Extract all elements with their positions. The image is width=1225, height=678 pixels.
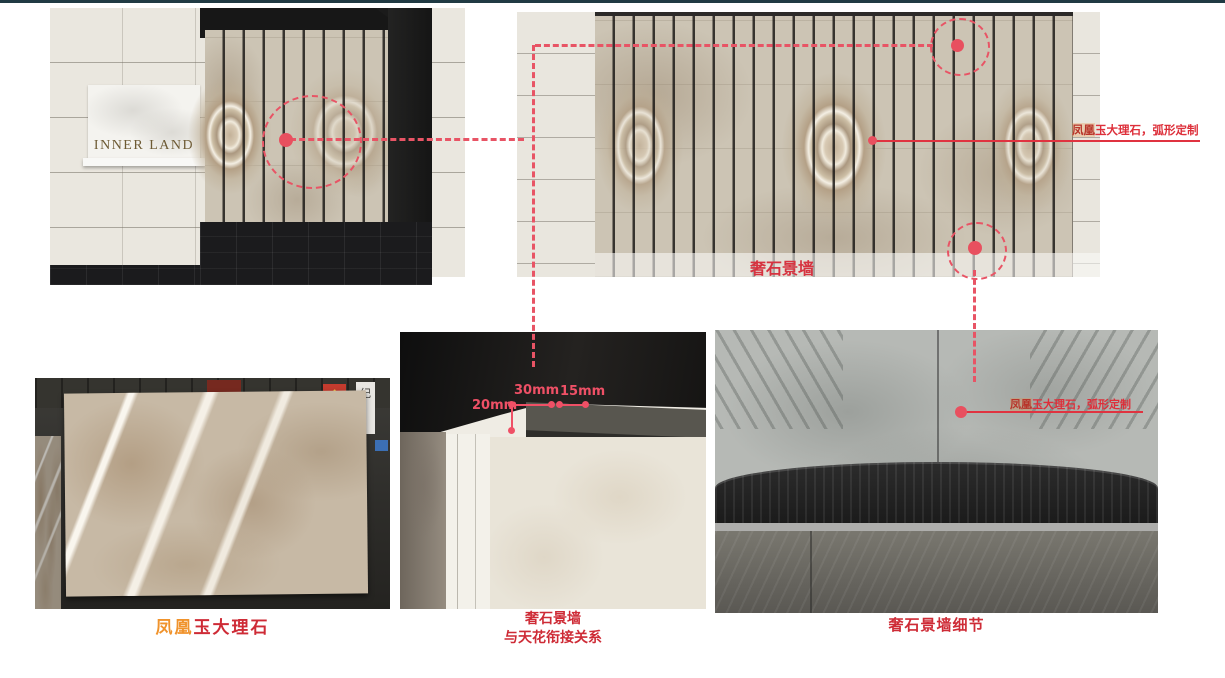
base-detail-paving <box>715 531 1158 613</box>
caption-rest: 玉大理石 <box>194 618 270 638</box>
wall-base-detail-image <box>715 330 1158 613</box>
ceiling-detail-caption: 奢石景墙 与天花衔接关系 <box>400 610 706 648</box>
callout-dot-elevation <box>868 136 877 145</box>
dimension-label-15mm: 15mm <box>560 384 605 399</box>
focus-dot-elevation-base <box>968 241 982 255</box>
dimension-dot <box>508 401 515 408</box>
dimension-line-30mm <box>512 404 552 406</box>
caption-highlight: 凤凰 <box>156 618 194 638</box>
warehouse-blue-tag <box>375 440 388 451</box>
dimension-label-30mm: 30mm <box>514 383 559 398</box>
callout-text-base-detail: 凤凰玉大理石，弧形定制 <box>1010 396 1131 412</box>
callout-text-elevation: 凤凰玉大理石，弧形定制 <box>1072 122 1199 138</box>
callout-text-rest: 玉大理石，弧形定制 <box>1095 123 1199 137</box>
elevation-right-stone-strip <box>1073 12 1100 277</box>
entrance-left-base-strip <box>50 265 205 285</box>
base-detail-paving-joint <box>810 531 812 613</box>
base-detail-light-strip <box>715 523 1158 531</box>
detail-left-dark-marble <box>400 432 446 609</box>
link-line-elevation-top <box>535 44 933 47</box>
elevation-wall-label: 奢石景墙 <box>750 255 814 279</box>
dimension-dot <box>508 427 515 434</box>
base-detail-reflection-left <box>715 330 843 429</box>
base-detail-panel-joint <box>937 330 939 472</box>
focus-dot-elevation-top <box>951 39 964 52</box>
entrance-dark-pillar <box>388 8 435 226</box>
dimension-dot <box>548 401 555 408</box>
top-divider-bar <box>0 0 1225 3</box>
detail-white-pilaster <box>446 434 490 609</box>
stone-wall-elevation-image <box>517 12 1100 277</box>
callout-text-rest: 玉大理石，弧形定制 <box>1032 398 1131 411</box>
focus-dot-entrance <box>279 133 293 147</box>
slide-canvas: INNER LAND 奢石景墙 金 纪 <box>0 0 1225 678</box>
link-line-entrance-to-elevation <box>290 138 524 141</box>
entrance-paving <box>200 222 432 285</box>
marble-slab-photo: 金 纪 <box>35 378 390 609</box>
side-marble-slab <box>35 436 61 609</box>
base-detail-caption: 奢石景墙细节 <box>715 614 1158 635</box>
base-detail-reflection-right <box>1030 330 1158 429</box>
callout-dot-base-detail <box>955 406 967 418</box>
entrance-render-image: INNER LAND <box>50 8 465 285</box>
phoenix-jade-slab <box>64 390 368 596</box>
elevation-bottom-fade-band <box>595 253 1100 277</box>
link-line-elevation-to-ceiling-detail <box>532 45 535 367</box>
ceiling-detail-caption-line1: 奢石景墙 <box>400 610 706 629</box>
entrance-right-stone-wall <box>432 8 465 277</box>
link-line-elevation-to-base-detail <box>973 270 976 382</box>
ceiling-joint-detail-image <box>400 332 706 609</box>
dimension-dot <box>556 401 563 408</box>
slab-photo-caption: 凤凰玉大理石 <box>35 613 390 638</box>
detail-marble-panel <box>490 437 706 609</box>
base-detail-curved-skirting <box>715 462 1158 526</box>
callout-text-highlight: 凤凰 <box>1010 398 1032 411</box>
dimension-dot <box>582 401 589 408</box>
focus-circle-entrance <box>262 95 362 189</box>
ceiling-detail-caption-line2: 与天花衔接关系 <box>400 629 706 648</box>
callout-line-elevation <box>873 140 1200 142</box>
callout-text-highlight: 凤凰 <box>1072 123 1095 137</box>
